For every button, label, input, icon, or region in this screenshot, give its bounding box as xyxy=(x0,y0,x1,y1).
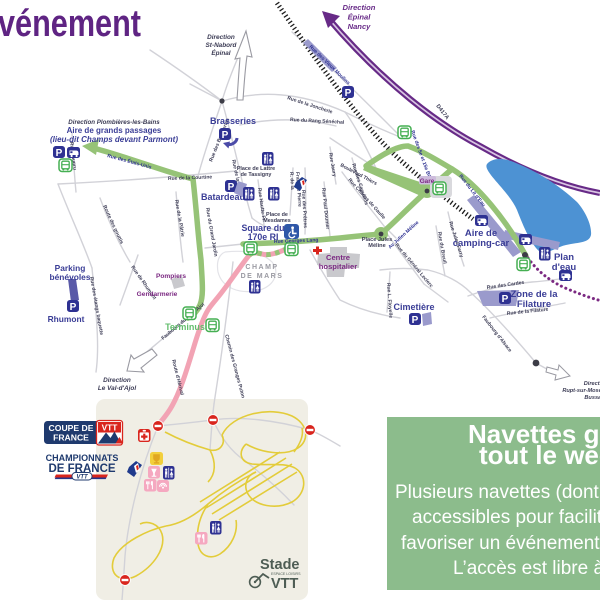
svg-text:accessibles pour faciliter l’a: accessibles pour faciliter l’accès et xyxy=(412,507,600,528)
svg-text:Direction: Direction xyxy=(343,3,376,12)
svg-text:Le Val-d'Ajol: Le Val-d'Ajol xyxy=(98,385,136,392)
svg-text:Cimetière: Cimetière xyxy=(393,302,434,312)
svg-text:Épinal: Épinal xyxy=(211,48,230,57)
svg-text:de Tassigny: de Tassigny xyxy=(241,172,272,178)
svg-text:Aire de grands passages: Aire de grands passages xyxy=(67,126,162,135)
svg-text:Brasseries: Brasseries xyxy=(210,116,256,126)
svg-text:événement: événement xyxy=(0,3,141,45)
svg-text:DE MARS: DE MARS xyxy=(241,273,284,280)
svg-text:Stade: Stade xyxy=(260,557,300,573)
svg-text:bénévoles: bénévoles xyxy=(50,272,91,282)
svg-text:favoriser un événement éco-res: favoriser un événement éco-respon xyxy=(401,533,600,554)
svg-text:Rupt-sur-Moselle: Rupt-sur-Moselle xyxy=(562,388,600,394)
svg-text:VTT: VTT xyxy=(271,576,299,592)
svg-text:CHAMPIONNATS: CHAMPIONNATS xyxy=(46,453,119,463)
svg-text:R. de la: R. de la xyxy=(288,172,295,190)
svg-text:camping-car: camping-car xyxy=(453,238,510,249)
svg-text:Terminus: Terminus xyxy=(165,322,205,332)
svg-text:L’accès est libre à tous.: L’accès est libre à tous. xyxy=(453,558,600,579)
svg-text:Méline: Méline xyxy=(368,243,385,249)
svg-text:(lieu-dit Champs devant Parmon: (lieu-dit Champs devant Parmont) xyxy=(50,135,178,144)
svg-text:Épinal: Épinal xyxy=(348,13,372,22)
svg-text:170e RI: 170e RI xyxy=(248,232,279,242)
svg-text:Rhumont: Rhumont xyxy=(48,314,85,324)
svg-text:Direction: Direction xyxy=(584,381,600,387)
svg-text:Filature: Filature xyxy=(517,299,551,310)
svg-text:VTT: VTT xyxy=(102,423,119,433)
svg-text:Direction: Direction xyxy=(207,34,235,41)
svg-text:hospitalier: hospitalier xyxy=(319,262,357,271)
svg-text:CHAMP: CHAMP xyxy=(245,264,278,271)
svg-text:tout le week-end: tout le week-end xyxy=(479,440,600,470)
svg-text:Bussang: Bussang xyxy=(584,395,600,401)
svg-text:VTT: VTT xyxy=(76,475,89,481)
svg-text:Direction Plombières-les-Bains: Direction Plombières-les-Bains xyxy=(68,119,160,126)
svg-text:COUPE DE: COUPE DE xyxy=(49,423,94,433)
svg-text:FRANCE: FRANCE xyxy=(53,433,89,443)
svg-text:Pompiers: Pompiers xyxy=(156,273,186,280)
svg-text:Gendarmerie: Gendarmerie xyxy=(137,291,178,298)
svg-text:Centre: Centre xyxy=(326,253,350,262)
svg-text:Direction: Direction xyxy=(103,377,131,384)
svg-text:Plusieurs navettes (dont certa: Plusieurs navettes (dont certaines xyxy=(395,482,600,503)
svg-text:St-Nabord: St-Nabord xyxy=(206,42,238,49)
svg-text:Nancy: Nancy xyxy=(348,22,372,31)
